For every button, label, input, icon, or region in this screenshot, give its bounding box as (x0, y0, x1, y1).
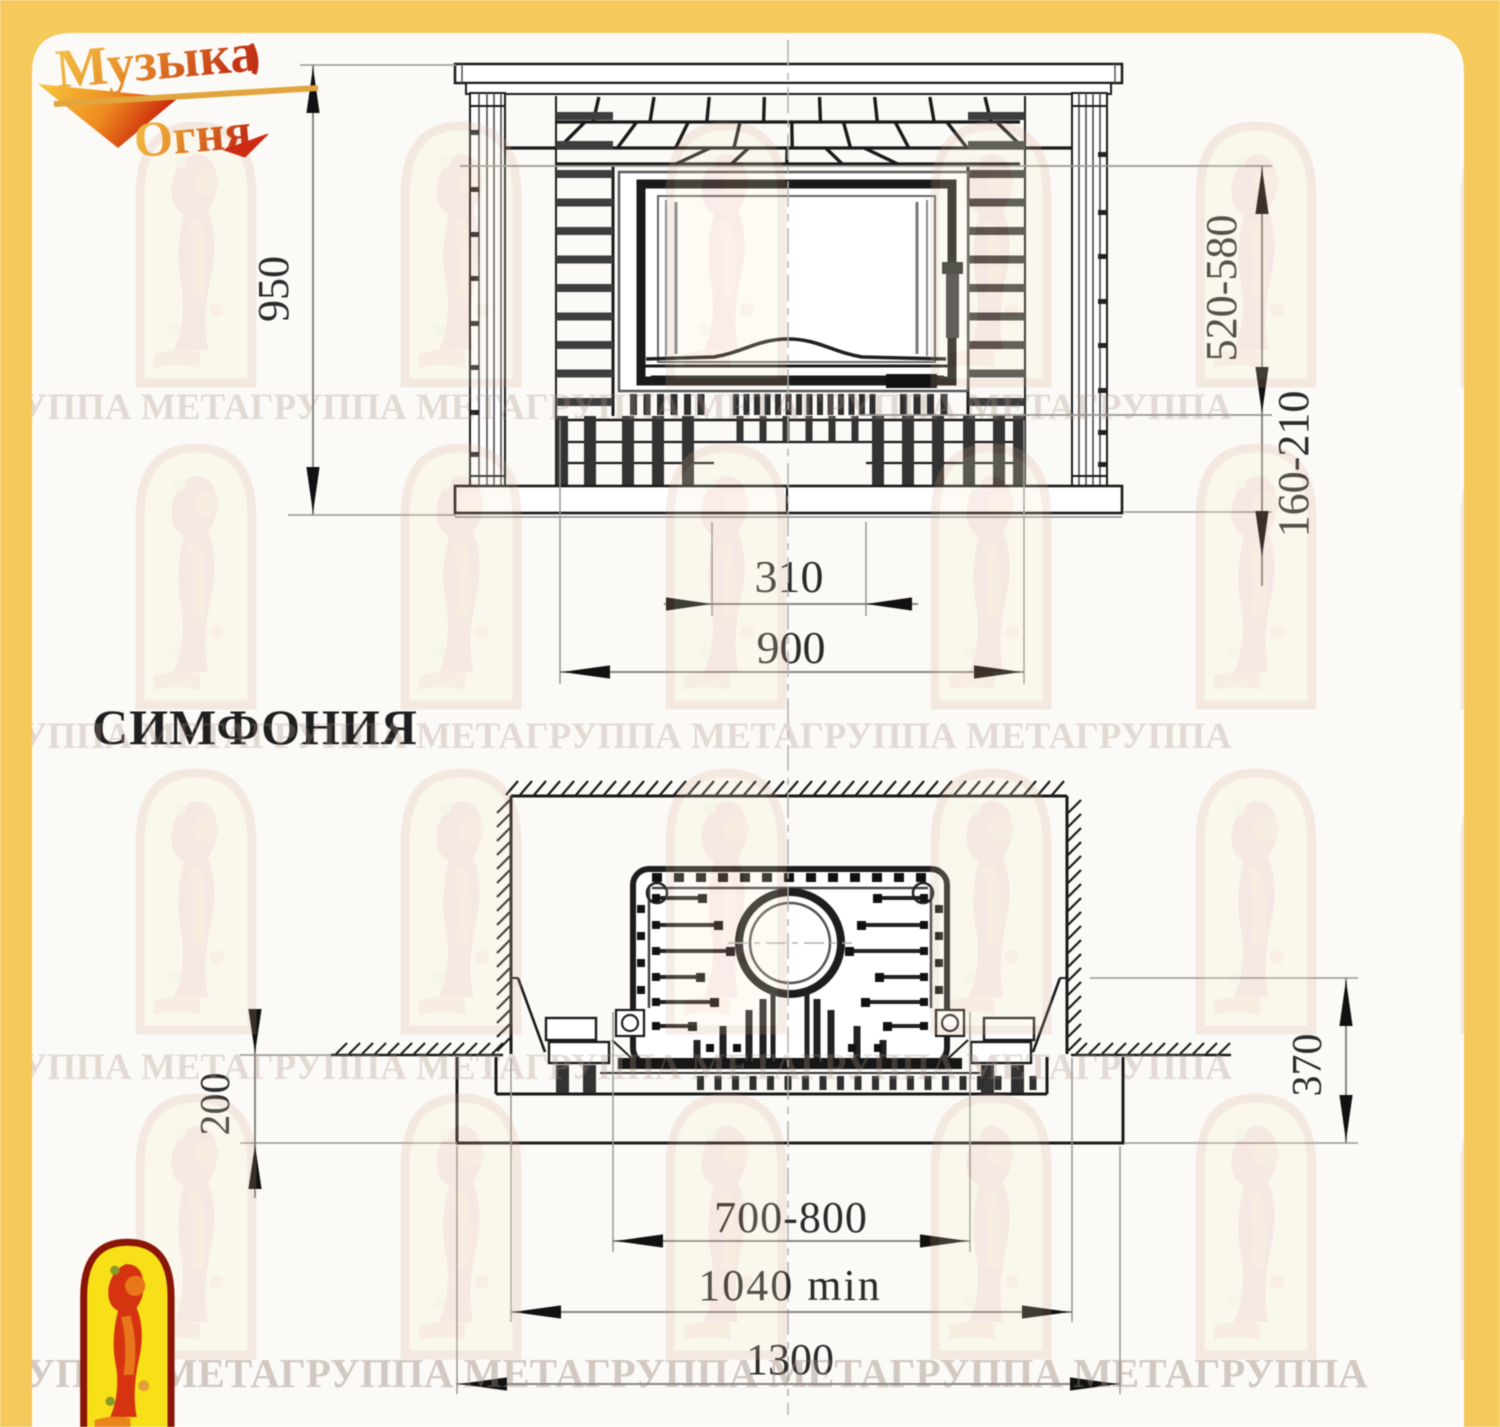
svg-text:ГРУППА МЕТАГРУППА МЕТАГРУППА М: ГРУППА МЕТАГРУППА МЕТАГРУППА МЕТАГРУППА … (0, 716, 1232, 757)
svg-text:370: 370 (1285, 1034, 1331, 1097)
svg-text:ГРУППА МЕТАГРУППА МЕТАГРУППА М: ГРУППА МЕТАГРУППА МЕТАГРУППА МЕТАГРУППА … (0, 387, 1232, 428)
svg-text:ГРУППА МЕТАГРУППА МЕТАГРУППА М: ГРУППА МЕТАГРУППА МЕТАГРУППА МЕТАГРУППА … (0, 1350, 1368, 1396)
svg-text:ГРУППА МЕТАГРУППА МЕТАГРУППА М: ГРУППА МЕТАГРУППА МЕТАГРУППА МЕТАГРУППА … (0, 1047, 1232, 1088)
svg-text:Огня: Огня (132, 102, 254, 168)
